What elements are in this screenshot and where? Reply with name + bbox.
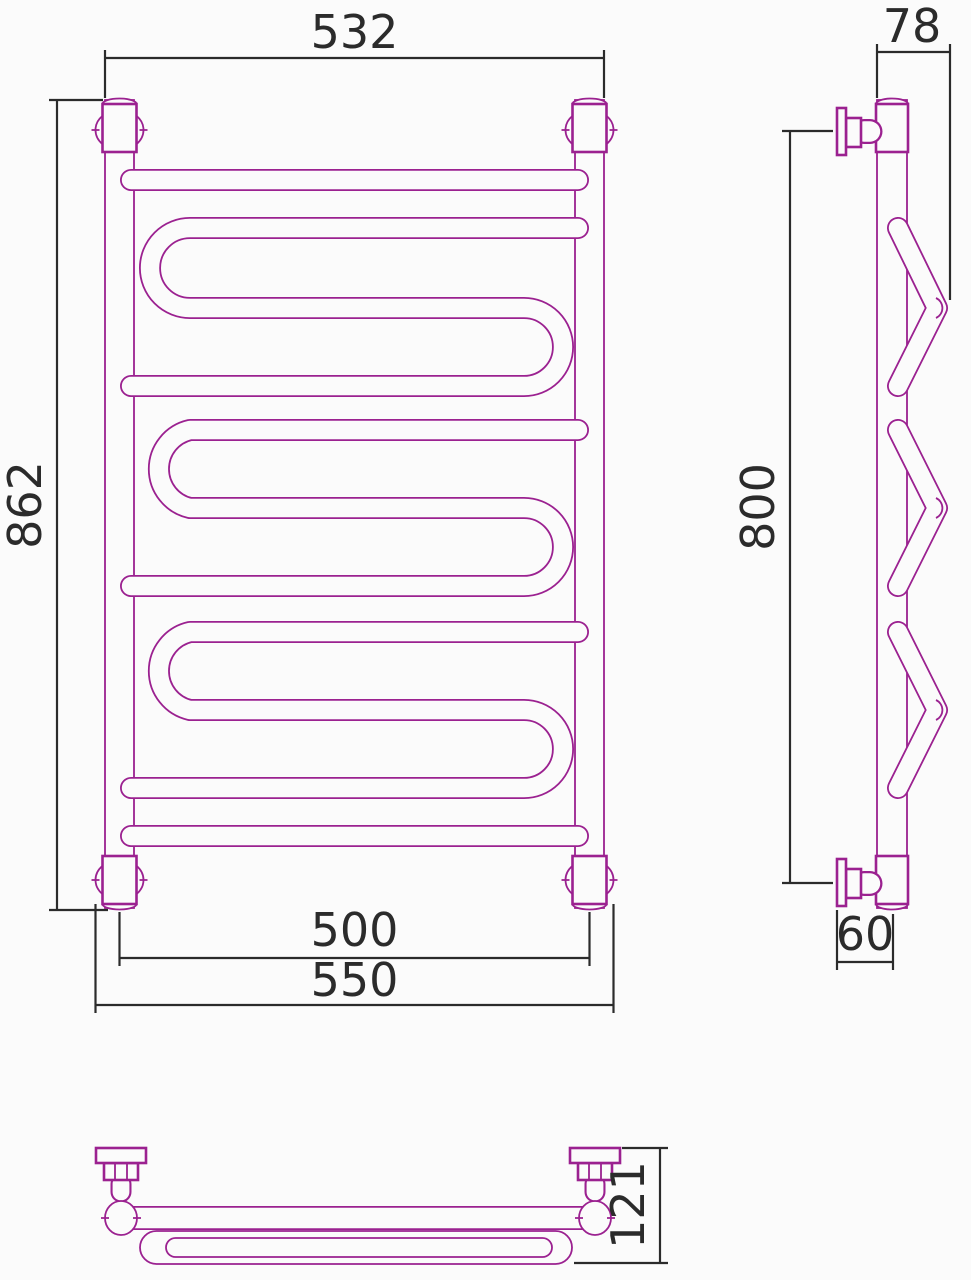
bracket-nut [846,869,861,898]
wall-plate-left [96,1148,146,1163]
dimension-label-532: 532 [311,5,399,59]
mount-collar [573,104,607,152]
technical-drawing-page: 532 862 500 550 [0,0,971,1280]
mount-collar [103,104,137,152]
bracket-nut-left [104,1163,138,1180]
wall-plate-right [570,1148,620,1163]
serpentine-loop-outer [140,1231,572,1264]
mount-collar [573,856,607,904]
wall-plate [837,859,846,906]
top-view [96,1148,620,1264]
front-view [92,99,618,910]
dimension-wall-offset: 60 [836,907,895,970]
side-view [837,99,942,910]
dimension-label-121: 121 [601,1161,655,1249]
dimension-label-862: 862 [0,461,52,549]
wall-bracket-bottom [837,859,870,906]
dimension-label-500: 500 [311,903,399,957]
dimension-overall-width: 532 [105,5,604,98]
dimension-label-78: 78 [883,0,942,53]
mount-collar [103,856,137,904]
wall-plate [837,108,846,155]
serpentine-coil-3 [131,632,578,788]
bracket-nut [846,118,861,147]
serpentine-coil-1 [131,228,578,386]
dimension-mount-height: 800 [731,131,833,883]
dimension-overall-height: 862 [0,100,108,910]
towel-rail-three-view-drawing: 532 862 500 550 [0,0,971,1280]
dimension-label-800: 800 [731,463,785,551]
dimension-label-60: 60 [836,907,895,961]
serpentine-coil-2 [131,430,578,586]
dimension-label-550: 550 [311,953,399,1007]
wall-bracket-top [837,108,870,155]
